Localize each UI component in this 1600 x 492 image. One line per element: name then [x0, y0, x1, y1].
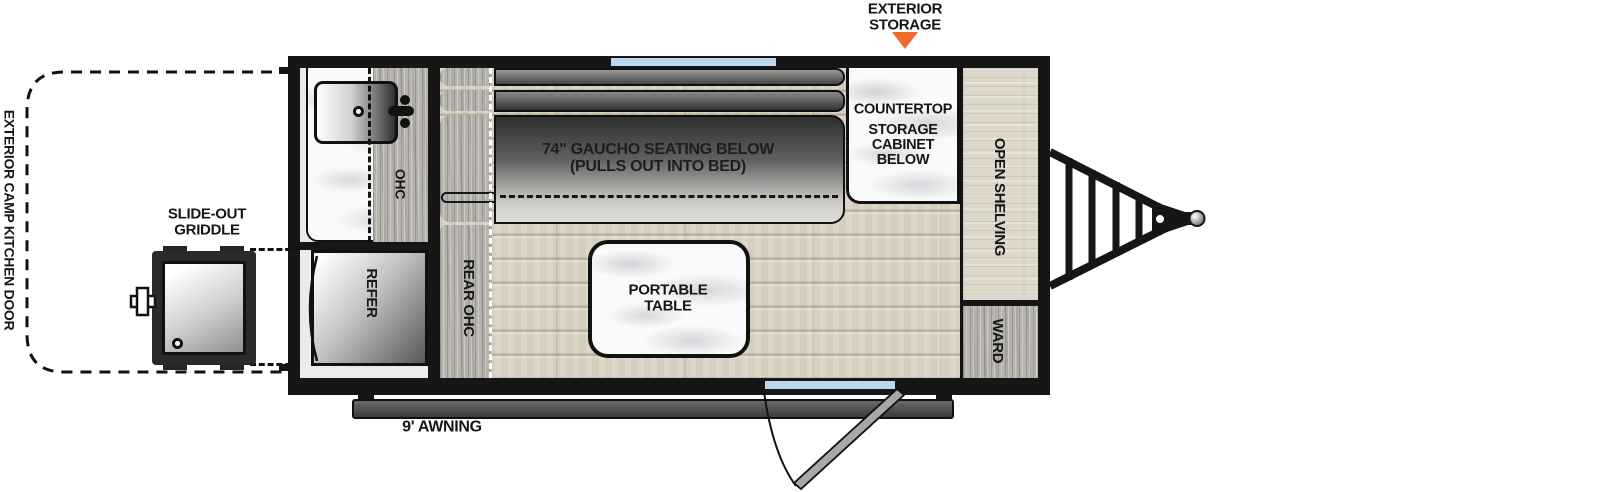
griddle-knob-icon	[172, 338, 183, 349]
hitch-ball-icon	[1190, 211, 1205, 226]
ohc-label: OHC	[393, 169, 408, 199]
griddle-slide-dashed-line	[250, 248, 300, 251]
countertop-label: COUNTERTOP	[854, 102, 952, 117]
ward-label: WARD	[989, 319, 1005, 364]
open-shelving-label: OPEN SHELVING	[991, 138, 1007, 256]
refer-label: REFER	[363, 268, 379, 317]
hitch-tongue	[1050, 152, 1205, 286]
griddle-slide-dashed-line	[250, 363, 300, 366]
rear-ohc-segment	[440, 68, 492, 86]
camp-kitchen-step	[300, 368, 428, 378]
awning-rail	[352, 399, 954, 419]
kitchen-divider-wall	[428, 68, 440, 378]
entry-door	[763, 379, 897, 391]
portable-table-label: PORTABLE TABLE	[629, 282, 708, 314]
awning-label: 9' AWNING	[402, 420, 482, 437]
gaucho-label: 74" GAUCHO SEATING BELOW (PULLS OUT INTO…	[542, 142, 774, 176]
griddle-handle-icon	[137, 288, 148, 315]
coupler-pin-icon	[1156, 215, 1164, 223]
floorplan-diagram: EXTERIOR STORAGE 74" GAUCHO SEATING BELO…	[0, 0, 1600, 492]
sink-drain-icon	[353, 106, 364, 117]
counter-divider-dashed-line	[368, 68, 371, 242]
gaucho-backrest-band	[494, 90, 845, 112]
storage-cabinet-label: STORAGE CABINET BELOW	[868, 123, 937, 169]
rear-ohc-segment	[440, 90, 492, 111]
exterior-storage-pointer-icon	[892, 32, 918, 49]
gaucho-pullout-dashed-line	[500, 195, 838, 198]
window	[610, 57, 777, 67]
exterior-storage-label: EXTERIOR STORAGE	[868, 1, 942, 33]
gaucho-backrest-band	[494, 68, 845, 86]
shelving-ward-divider	[960, 300, 1038, 306]
door-hinge-tick	[279, 364, 292, 371]
gaucho-closed-outline	[441, 192, 494, 203]
exterior-camp-kitchen-door-label: EXTERIOR CAMP KITCHEN DOOR	[2, 110, 17, 331]
rear-ohc-label: REAR OHC	[460, 259, 476, 337]
kitchen-refer-divider	[300, 242, 428, 250]
rear-ohc-segment	[440, 115, 492, 222]
slide-out-griddle-label: SLIDE-OUT GRIDDLE	[168, 206, 246, 238]
rear-ohc-dashed-edge	[489, 68, 492, 378]
door-hinge-tick	[279, 67, 292, 74]
